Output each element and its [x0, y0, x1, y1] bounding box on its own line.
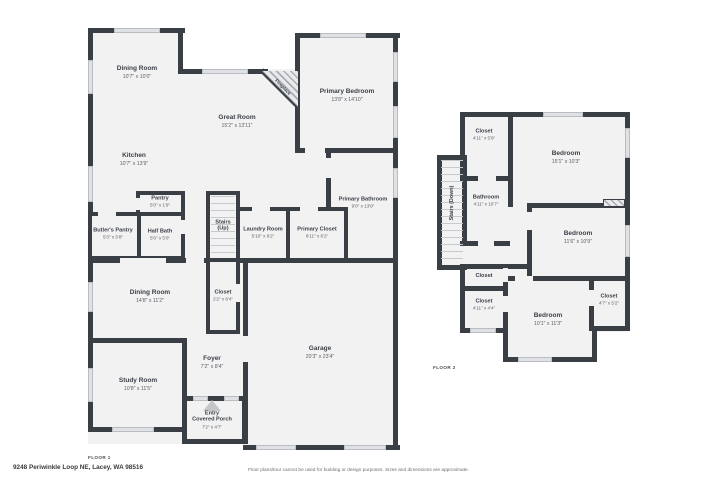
window [88, 368, 93, 402]
room-dims: 15'2" x 13'11" [218, 122, 255, 128]
room-name: Great Room [218, 114, 255, 122]
room-name: Dining Room [117, 65, 157, 73]
room-label-bathroom: Bathroom 4'11" x 10'7" [473, 195, 499, 208]
room-dims: 6'11" x 6'2" [297, 234, 336, 239]
room-name: Closet [213, 290, 233, 296]
room-name: (Up) [215, 226, 231, 232]
room-dims: 9'0" x 13'9" [339, 204, 388, 209]
room-name: Half Bath [148, 229, 173, 235]
window [320, 33, 366, 38]
door-opening [181, 220, 185, 234]
window [88, 282, 93, 312]
room-dims: 10'7" x 10'0" [117, 73, 157, 79]
room-name: Bedroom [534, 312, 563, 320]
wall [88, 338, 187, 343]
door-opening [243, 336, 248, 362]
window [543, 112, 583, 117]
room-label-entry-covered-porch: Entry Covered Porch 7'2" x 4'7" [192, 410, 232, 429]
room-name: Primary Bathroom [339, 197, 388, 203]
room-name: Primary Bedroom [320, 88, 375, 96]
room-dims: 10'7" x 13'9" [120, 160, 148, 166]
room-dims: 4'11" x 5'9" [473, 136, 495, 141]
window [114, 28, 160, 33]
room-label-kitchen: Kitchen 10'7" x 13'9" [120, 152, 148, 167]
room-dims: 10'8" x 11'5" [119, 385, 157, 391]
window [224, 396, 239, 401]
door-opening [252, 207, 270, 211]
room-dims: 11'6" x 10'9" [564, 238, 593, 244]
room-label-closet-top: Closet 4'11" x 5'9" [473, 129, 495, 142]
entry-marker-icon [203, 400, 221, 411]
room-name: Laundry Room [243, 227, 282, 233]
door-opening [589, 290, 594, 306]
room-name: Dining Room [130, 289, 170, 297]
room-label-stairs-up: Stairs (Up) [215, 220, 231, 233]
shelf-hatch [603, 199, 625, 207]
room-label-laundry-room: Laundry Room 5'10" x 6'2" [243, 227, 282, 240]
door-opening [478, 241, 494, 246]
room-name: Bathroom [473, 195, 499, 201]
room-name: Bedroom [564, 230, 593, 238]
floor2-tag: FLOOR 2 [433, 365, 456, 370]
room-label-closet: Closet 2'2" x 8'4" [213, 290, 233, 303]
room-dims: 7'2" x 8'4" [201, 363, 224, 369]
room-dims: 20'3" x 23'4" [306, 353, 334, 359]
room-label-great-room: Great Room 15'2" x 13'11" [218, 114, 255, 129]
window [625, 225, 630, 257]
disclaimer-text: Floor plans/tour cannot be used for buil… [248, 468, 469, 473]
room-label-primary-bedroom: Primary Bedroom 13'8" x 14'10" [320, 88, 375, 103]
window [88, 60, 93, 94]
window [256, 445, 296, 450]
wall [178, 28, 183, 74]
door-opening [515, 276, 533, 281]
door-opening [503, 296, 508, 312]
door-opening [503, 268, 508, 282]
room-label-half-bath: Half Bath 5'6" x 5'0" [148, 229, 173, 242]
door-opening [186, 258, 204, 263]
door-opening [305, 148, 325, 153]
room-dims: 5'6" x 5'0" [148, 236, 173, 241]
door-opening [478, 176, 496, 181]
window [202, 69, 248, 74]
wall [460, 286, 508, 291]
wall [508, 112, 513, 207]
room-dims: 5'0" x 1'9" [150, 203, 170, 208]
room-name: Garage [306, 345, 334, 353]
room-name: Foyer [201, 355, 224, 363]
window [112, 427, 154, 432]
room-label-bedroom-1: Bedroom 15'1" x 10'3" [552, 150, 581, 165]
floor1-tag: FLOOR 1 [88, 455, 111, 460]
door-opening [98, 212, 116, 216]
wall [393, 33, 398, 450]
wall [460, 264, 530, 269]
room-dims: 2'2" x 8'4" [213, 297, 233, 302]
floor-area [460, 176, 510, 276]
room-dims: 5'10" x 6'2" [243, 234, 282, 239]
room-name: Closet [599, 294, 619, 300]
room-label-bedroom-3: Bedroom 10'1" x 11'3" [534, 312, 563, 327]
room-label-study-room: Study Room 10'8" x 11'5" [119, 377, 157, 392]
room-name: Closet [475, 273, 492, 279]
wall [182, 338, 187, 432]
door-opening [120, 258, 166, 263]
room-name: Closet [473, 299, 495, 305]
window [393, 168, 398, 198]
room-label-dining-room: Dining Room 10'7" x 10'0" [117, 65, 157, 80]
room-label-pantry: Pantry 5'0" x 1'9" [150, 196, 170, 209]
room-name: Study Room [119, 377, 157, 385]
room-label-butlers-pantry: Butler's Pantry 5'3" x 5'8" [91, 228, 135, 241]
window [344, 445, 386, 450]
window [518, 357, 552, 362]
room-name: Kitchen [120, 152, 148, 160]
room-label-bedroom-2: Bedroom 11'6" x 10'9" [564, 230, 593, 245]
window [625, 128, 630, 158]
room-name: Bedroom [552, 150, 581, 158]
window [470, 328, 496, 333]
room-label-foyer: Foyer 7'2" x 8'4" [201, 355, 224, 370]
door-opening [326, 158, 331, 178]
wall [460, 265, 465, 332]
room-name: Pantry [150, 196, 170, 202]
door-opening [136, 198, 140, 210]
window [393, 106, 398, 138]
room-label-closet-right: Closet 4'7" x 5'2" [599, 294, 619, 307]
window [393, 52, 398, 82]
wall [182, 439, 247, 444]
room-dims: 4'11" x 4'4" [473, 306, 495, 311]
door-opening [300, 207, 318, 211]
floor-plan-page: Fireplace Dining Room 10'7" x 10'0" Grea… [0, 0, 720, 479]
room-label-closet-left: Closet 4'11" x 4'4" [473, 299, 495, 312]
room-name: Butler's Pantry [91, 228, 135, 234]
room-name: Closet [473, 129, 495, 135]
room-label-primary-bathroom: Primary Bathroom 9'0" x 13'9" [339, 197, 388, 210]
room-label-dining-room-lower: Dining Room 14'8" x 11'2" [130, 289, 170, 304]
wall [592, 326, 597, 362]
room-dims: 5'3" x 5'8" [91, 235, 135, 240]
room-label-primary-closet: Primary Closet 6'11" x 6'2" [297, 227, 336, 240]
room-label-closet-mid: Closet [475, 273, 492, 279]
window [88, 166, 93, 202]
room-name: Primary Closet [297, 227, 336, 233]
room-dims: 4'7" x 5'2" [599, 301, 619, 306]
room-dims: 13'8" x 14'10" [320, 96, 375, 102]
room-dims: 15'1" x 10'3" [552, 158, 581, 164]
room-dims: 14'8" x 11'2" [130, 297, 170, 303]
room-label-stairs-down: Stairs (Down) [449, 186, 455, 221]
room-dims: 7'2" x 4'7" [192, 424, 232, 429]
room-dims: 4'11" x 10'7" [473, 202, 499, 207]
room-name: Covered Porch [192, 417, 232, 423]
door-opening [527, 212, 532, 230]
room-label-garage: Garage 20'3" x 23'4" [306, 345, 334, 360]
room-dims: 10'1" x 11'3" [534, 320, 563, 326]
property-address: 9248 Periwinkle Loop NE, Lacey, WA 98516 [13, 464, 143, 471]
door-opening [236, 284, 240, 302]
